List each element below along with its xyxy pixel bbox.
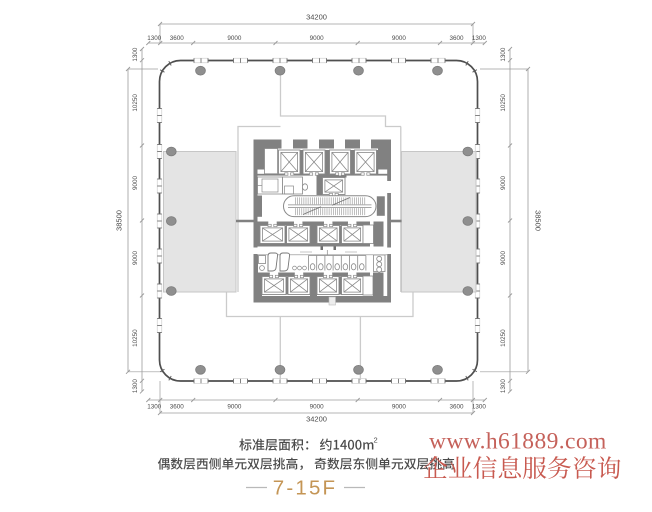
svg-text:10250: 10250: [500, 94, 507, 112]
svg-text:9000: 9000: [227, 35, 242, 42]
svg-text:9000: 9000: [392, 404, 407, 411]
svg-text:34200: 34200: [306, 13, 327, 22]
svg-text:9000: 9000: [392, 35, 407, 42]
svg-text:3600: 3600: [170, 404, 185, 411]
svg-text:10250: 10250: [132, 329, 139, 347]
svg-text:9000: 9000: [132, 176, 139, 191]
svg-text:1300: 1300: [472, 404, 487, 411]
svg-text:38500: 38500: [534, 210, 543, 231]
svg-text:9000: 9000: [500, 176, 507, 191]
svg-text:9000: 9000: [132, 251, 139, 266]
svg-text:2: 2: [374, 436, 378, 445]
svg-text:9000: 9000: [310, 35, 325, 42]
svg-text:9000: 9000: [500, 251, 507, 266]
svg-text:3600: 3600: [170, 35, 185, 42]
svg-text:1300: 1300: [132, 47, 139, 62]
svg-text:10250: 10250: [132, 94, 139, 112]
svg-text:9000: 9000: [227, 404, 242, 411]
svg-text:1300: 1300: [472, 35, 487, 42]
svg-text:1300: 1300: [500, 47, 507, 62]
svg-text:10250: 10250: [500, 329, 507, 347]
svg-text:3600: 3600: [449, 35, 464, 42]
svg-text:1300: 1300: [147, 404, 162, 411]
svg-text:1300: 1300: [147, 35, 162, 42]
svg-text:www.h61889.com: www.h61889.com: [429, 429, 607, 455]
svg-text:7-15F: 7-15F: [273, 477, 338, 500]
svg-text:3600: 3600: [449, 404, 464, 411]
svg-text:9000: 9000: [310, 404, 325, 411]
svg-text:34200: 34200: [306, 415, 327, 424]
svg-text:1300: 1300: [132, 379, 139, 394]
svg-text:1300: 1300: [500, 379, 507, 394]
svg-text:38500: 38500: [115, 210, 124, 231]
